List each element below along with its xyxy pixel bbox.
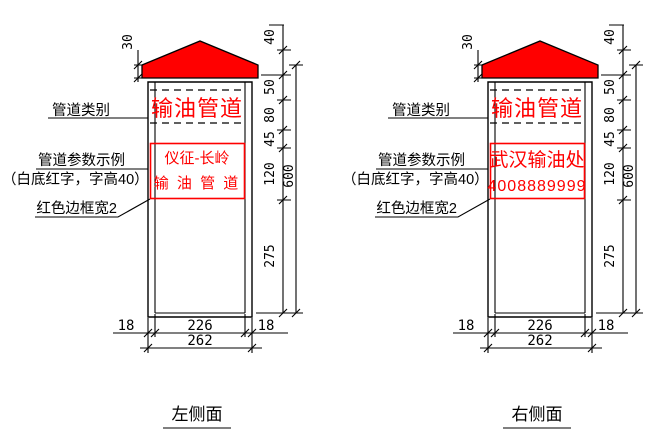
width-dim-226: 226 — [187, 318, 212, 334]
callout-params-note: （白底红字，字高40） — [342, 171, 489, 188]
height-dim-40: 40 — [603, 29, 618, 45]
cap-dim-label: 30 — [121, 34, 136, 50]
panel-line1: 仪征-长岭 — [165, 150, 230, 167]
width-dim-262: 262 — [527, 333, 552, 349]
height-dim-275: 275 — [603, 244, 618, 267]
overall-height-label: 600 — [282, 164, 297, 187]
panel-line2: 输 油 管 道 — [154, 175, 241, 192]
sign-category-text: 输油管道 — [491, 96, 583, 121]
red-cap-shape — [482, 41, 598, 78]
pipeline-marker-drawing: 输油管道 仪征-长岭 输 油 管 道 管道类别 管道参数示例 （白底红字，字高4… — [0, 0, 669, 447]
height-dim-40: 40 — [263, 29, 278, 45]
width-dim-18-right: 18 — [258, 318, 275, 334]
sign-category-text: 输油管道 — [151, 96, 243, 121]
right-side-view: 输油管道 武汉输油处 4008889999 管道类别 管道参数示例 （白底红字，… — [342, 25, 643, 428]
drawing-canvas: 输油管道 仪征-长岭 输 油 管 道 管道类别 管道参数示例 （白底红字，字高4… — [0, 0, 669, 447]
height-dim-80: 80 — [603, 107, 618, 123]
callout-params-label: 管道参数示例 — [38, 152, 125, 169]
overall-height-label: 600 — [622, 164, 637, 187]
width-dim-226: 226 — [527, 318, 552, 334]
cap-dim-label: 30 — [461, 34, 476, 50]
height-dim-45: 45 — [263, 131, 278, 147]
height-dim-120: 120 — [603, 162, 618, 185]
view-title: 左侧面 — [172, 405, 223, 424]
left-side-view: 输油管道 仪征-长岭 输 油 管 道 管道类别 管道参数示例 （白底红字，字高4… — [2, 25, 303, 428]
panel-line2: 4008889999 — [488, 178, 587, 195]
width-dim-262: 262 — [187, 333, 212, 349]
width-dim-18-right: 18 — [598, 318, 615, 334]
height-dim-50: 50 — [603, 79, 618, 95]
callout-border-label: 红色边框宽2 — [376, 200, 457, 217]
red-cap-shape — [142, 41, 258, 78]
callout-params-label: 管道参数示例 — [378, 152, 465, 169]
height-dim-120: 120 — [263, 162, 278, 185]
callout-category-label: 管道类别 — [52, 102, 110, 119]
callout-category-label: 管道类别 — [392, 102, 450, 119]
width-dim-18-left: 18 — [118, 318, 135, 334]
callout-border-label: 红色边框宽2 — [36, 200, 117, 217]
height-dim-45: 45 — [603, 131, 618, 147]
height-dim-80: 80 — [263, 107, 278, 123]
panel-line1: 武汉输油处 — [489, 149, 584, 171]
height-dim-275: 275 — [263, 244, 278, 267]
view-title: 右侧面 — [512, 405, 563, 424]
height-dim-50: 50 — [263, 79, 278, 95]
width-dim-18-left: 18 — [458, 318, 475, 334]
callout-params-note: （白底红字，字高40） — [2, 171, 149, 188]
